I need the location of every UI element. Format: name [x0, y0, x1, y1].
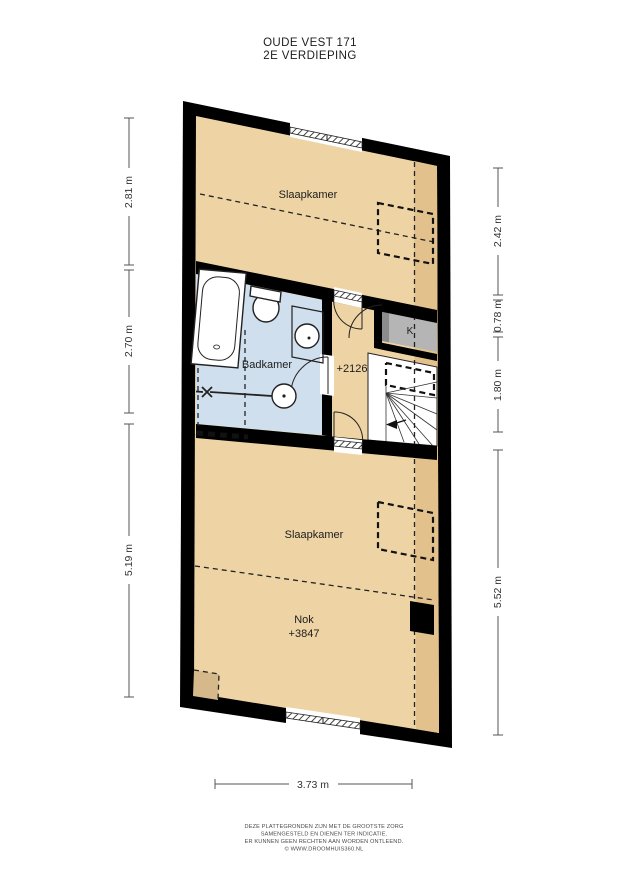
title-line1: OUDE VEST 171 [263, 37, 357, 49]
label-landing-level: +2126 [337, 363, 368, 375]
wall-chunk-right [410, 601, 434, 635]
label-nok-level: +3847 [289, 628, 320, 640]
plan-title: OUDE VEST 171 2E VERDIEPING [263, 37, 357, 62]
footer-line3: ER KUNNEN GEEN RECHTEN AAN WORDEN ONTLEE… [245, 839, 404, 845]
dim-right-3: 1.80 m [492, 369, 504, 401]
title-line2: 2E VERDIEPING [263, 50, 356, 62]
footer-disclaimer: DEZE PLATTEGRONDEN ZIJN MET DE GROOTSTE … [245, 824, 404, 853]
footer-line1: DEZE PLATTEGRONDEN ZIJN MET DE GROOTSTE … [245, 824, 404, 830]
wall-closet-left [374, 307, 382, 343]
washstand-sink [295, 324, 319, 348]
dim-right-2: 0.78 m [492, 300, 504, 332]
dimension-bottom: 3.73 m [215, 779, 412, 791]
dim-right-1: 2.42 m [492, 215, 504, 247]
floorplan-canvas: OUDE VEST 171 2E VERDIEPING [0, 0, 629, 890]
washstand-drain [308, 337, 311, 340]
dim-left-3: 5.19 m [123, 544, 135, 576]
dim-left-1: 2.81 m [123, 176, 135, 208]
dim-bottom: 3.73 m [297, 779, 329, 791]
dimensions-right: 2.42 m 0.78 m 1.80 m 5.52 m [492, 168, 504, 735]
dim-left-2: 2.70 m [123, 325, 135, 357]
label-slaapkamer-top: Slaapkamer [279, 189, 338, 201]
footer-line2: SAMENGESTELD EN DIENEN TER INDICATIE. [261, 832, 388, 838]
washbasin-drain [282, 394, 285, 397]
label-badkamer: Badkamer [242, 359, 292, 371]
closet-door-panel [382, 311, 389, 342]
footer-line4: © WWW.DROOMHUIS360.NL [285, 846, 364, 853]
dimensions-left: 2.81 m 2.70 m 5.19 m [123, 118, 135, 697]
dim-right-4: 5.52 m [492, 576, 504, 608]
label-nok: Nok [294, 614, 314, 626]
floorplan-page: OUDE VEST 171 2E VERDIEPING [0, 0, 629, 890]
label-slaapkamer-bottom: Slaapkamer [285, 529, 344, 541]
label-closet: K [407, 326, 414, 337]
bathtub [191, 269, 246, 368]
door-bathroom-gap [320, 354, 334, 396]
bathtub-outer [191, 269, 246, 368]
chimney [193, 670, 219, 700]
staircase [368, 353, 437, 446]
